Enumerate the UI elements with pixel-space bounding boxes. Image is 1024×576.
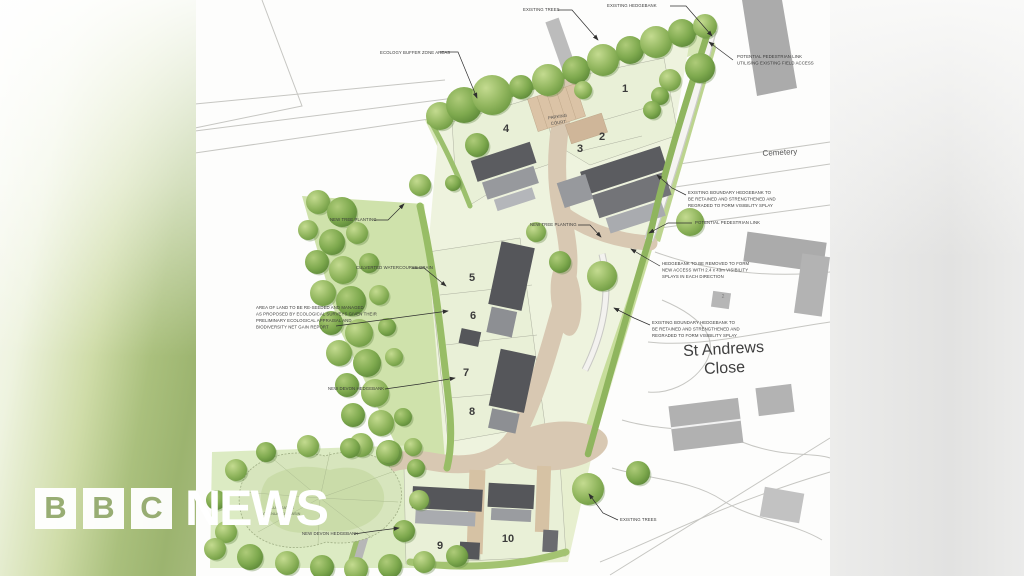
label-reseeded-land-c: PRELIMINARY ECOLOGICAL APPRAISAL AND bbox=[256, 318, 352, 323]
bbc-logo-box-1: B bbox=[35, 488, 76, 529]
plot-2-label: 2 bbox=[599, 131, 605, 143]
street-label-line2: Close bbox=[704, 359, 746, 378]
label-new-tree-planting-w: NEW TREE PLANTING bbox=[330, 217, 377, 222]
cemetery-label: Cemetery bbox=[762, 147, 797, 158]
bbc-logo-box-3: C bbox=[131, 488, 172, 529]
plot-7-label: 7 bbox=[463, 367, 469, 379]
bbc-letter-b1: B bbox=[44, 492, 66, 523]
label-hedgebank-retained-1c: REGRADED TO FORM VISIBILITY SPLAY bbox=[688, 203, 773, 208]
label-reseeded-land-d: BIODIVERSITY NET GAIN REPORT bbox=[256, 325, 329, 330]
plot-8-label: 8 bbox=[469, 406, 475, 418]
label-hedgebank-retained-2b: BE RETAINED AND STRENGTHENED AND bbox=[652, 327, 740, 332]
label-watercourse-drain: CULVERTED WATERCOURSE DRAIN bbox=[356, 265, 433, 270]
label-ped-link-ne: POTENTIAL PEDESTRIAN LINK bbox=[737, 54, 802, 59]
label-hedgebank-retained-2c: REGRADED TO FORM VISIBILITY SPLAY bbox=[652, 333, 737, 338]
label-existing-trees-se: EXISTING TREES bbox=[620, 517, 657, 522]
plot-5-label: 5 bbox=[469, 272, 475, 284]
label-hedgebank-removed: HEDGEBANK TO BE REMOVED TO FORM bbox=[662, 261, 750, 266]
bbc-letter-c: C bbox=[140, 492, 162, 523]
label-reseeded-land-b: AS PROPOSED BY ECOLOGICAL SURVEYS GIVEN … bbox=[256, 312, 377, 317]
plot-9-label: 9 bbox=[437, 540, 443, 552]
label-existing-hedgebank: EXISTING HEDGEBANK bbox=[607, 3, 657, 8]
label-reseeded-land: AREA OF LAND TO BE RE-SEEDED AND MANAGED bbox=[256, 305, 364, 310]
street-label-line1: St Andrews bbox=[683, 339, 765, 360]
bbc-news-wordmark: NEWS bbox=[185, 488, 327, 529]
plot-4-label: 4 bbox=[503, 123, 510, 135]
existing-house-number: 2 bbox=[722, 294, 725, 300]
label-hedgebank-retained-1b: BE RETAINED AND STRENGTHENED AND bbox=[688, 197, 776, 202]
label-hedgebank-retained-2: EXISTING BOUNDARY HEDGEBANK TO bbox=[652, 320, 736, 325]
plot-1-label: 1 bbox=[622, 83, 628, 95]
label-existing-trees-top: EXISTING TREES bbox=[523, 7, 560, 12]
label-hedgebank-removed-b: NEW ACCESS WITH 2.4 x 43m VISIBILITY bbox=[662, 268, 748, 273]
plot-10-label: 10 bbox=[502, 533, 514, 545]
label-new-devon-hedgebank-1: NEW DEVON HEDGEBANK bbox=[328, 386, 384, 391]
bbc-logo-box-2: B bbox=[83, 488, 124, 529]
bbc-news-image-frame: ECOLOGY BUFFER ZONE AREAS EXISTING TREES… bbox=[0, 0, 1024, 576]
label-hedgebank-retained-1: EXISTING BOUNDARY HEDGEBANK TO bbox=[688, 190, 772, 195]
bbc-letter-b2: B bbox=[92, 492, 114, 523]
label-ecology-buffer: ECOLOGY BUFFER ZONE AREAS bbox=[380, 50, 450, 55]
label-hedgebank-removed-c: SPLAYS IN EACH DIRECTION bbox=[662, 274, 724, 279]
label-ped-link-ne-2: UTILISING EXISTING FIELD ACCESS bbox=[737, 61, 814, 66]
label-new-tree-planting-c: NEW TREE PLANTING bbox=[530, 222, 577, 227]
blurred-right-pillarbox bbox=[830, 0, 1024, 576]
plot-6-label: 6 bbox=[470, 310, 476, 322]
plot-3-label: 3 bbox=[577, 143, 583, 155]
label-ped-link-e: POTENTIAL PEDESTRIAN LINK bbox=[695, 220, 760, 225]
bbc-news-logo: B B C NEWS bbox=[35, 488, 327, 529]
